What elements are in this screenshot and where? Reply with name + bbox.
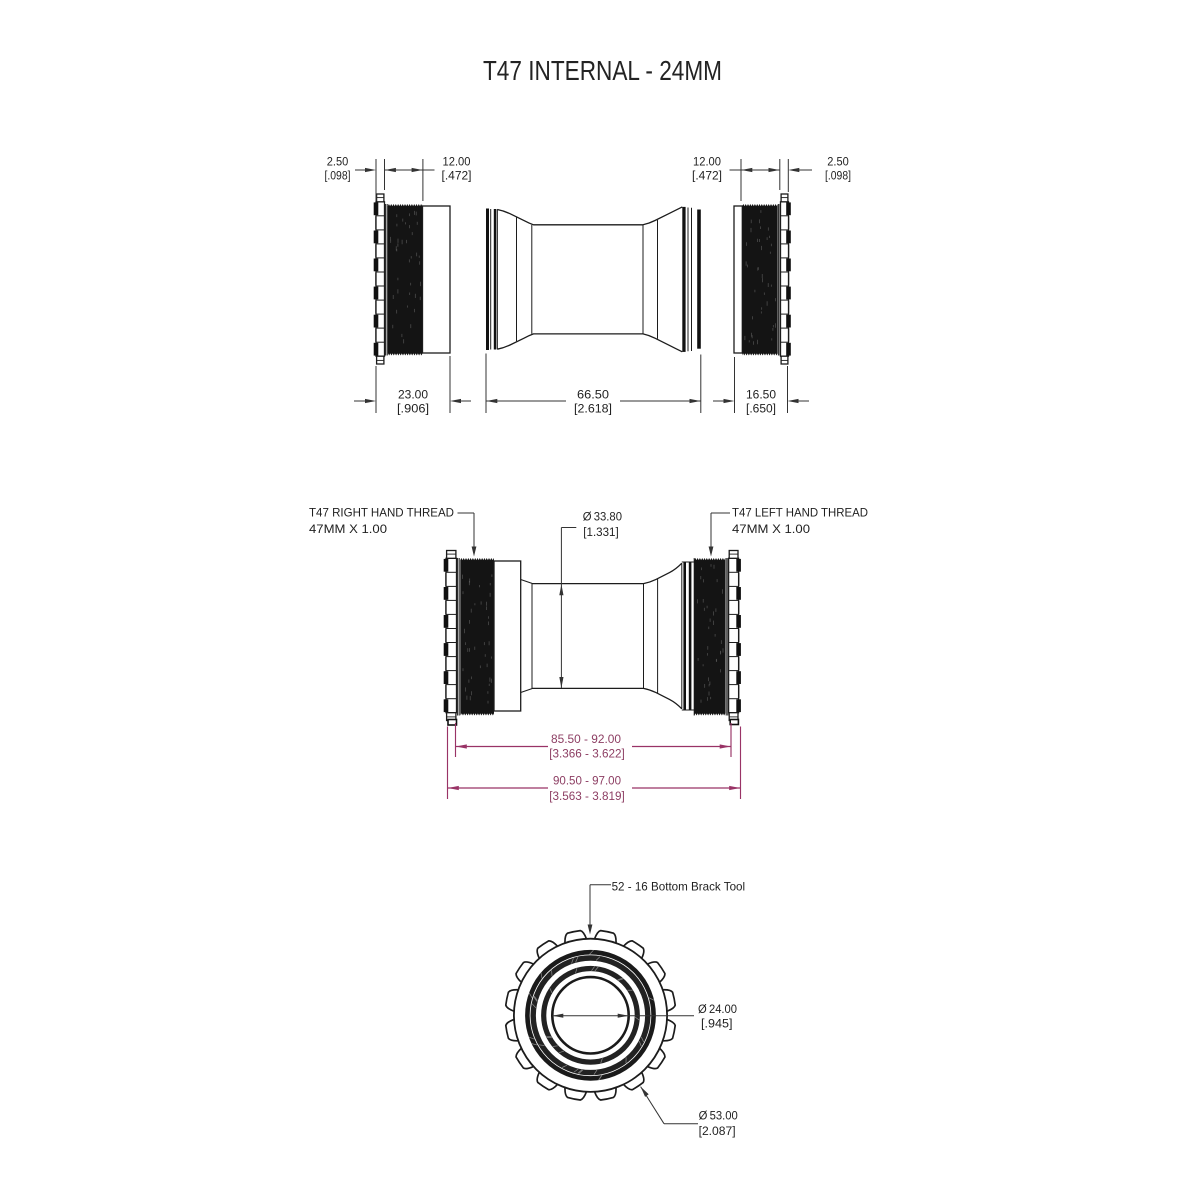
- svg-text:[.472]: [.472]: [442, 171, 472, 183]
- svg-text:Ø 53.00: Ø 53.00: [699, 1111, 738, 1123]
- svg-text:[3.563 - 3.819]: [3.563 - 3.819]: [549, 791, 625, 803]
- svg-text:16.50: 16.50: [746, 390, 776, 402]
- svg-text:T47 INTERNAL - 24MM: T47 INTERNAL - 24MM: [483, 55, 722, 86]
- svg-text:[1.331]: [1.331]: [583, 527, 618, 539]
- svg-text:[.650]: [.650]: [746, 404, 776, 416]
- svg-text:[3.366 - 3.622]: [3.366 - 3.622]: [549, 749, 625, 761]
- svg-text:66.50: 66.50: [577, 390, 609, 402]
- svg-text:85.50 - 92.00: 85.50 - 92.00: [551, 734, 621, 746]
- svg-text:Ø 33.80: Ø 33.80: [583, 512, 622, 524]
- svg-text:12.00: 12.00: [693, 157, 721, 169]
- svg-text:[.472]: [.472]: [692, 171, 722, 183]
- svg-text:[.098]: [.098]: [825, 171, 851, 183]
- svg-text:[2.618]: [2.618]: [574, 404, 612, 416]
- svg-text:2.50: 2.50: [827, 157, 849, 169]
- svg-text:[.906]: [.906]: [397, 404, 429, 416]
- svg-text:T47 RIGHT HAND THREAD: T47 RIGHT HAND THREAD: [309, 506, 454, 520]
- svg-text:[.098]: [.098]: [325, 171, 351, 183]
- svg-text:52 - 16 Bottom Brack Tool: 52 - 16 Bottom Brack Tool: [612, 880, 746, 894]
- svg-text:T47 LEFT HAND THREAD: T47 LEFT HAND THREAD: [732, 506, 868, 520]
- svg-text:2.50: 2.50: [327, 157, 349, 169]
- svg-text:[.945]: [.945]: [701, 1018, 733, 1030]
- svg-text:12.00: 12.00: [443, 157, 471, 169]
- svg-text:[2.087]: [2.087]: [699, 1126, 736, 1138]
- svg-text:47MM X 1.00: 47MM X 1.00: [732, 522, 810, 536]
- svg-text:Ø 24.00: Ø 24.00: [698, 1004, 737, 1016]
- svg-text:90.50 - 97.00: 90.50 - 97.00: [553, 776, 621, 788]
- svg-text:23.00: 23.00: [398, 390, 428, 402]
- svg-text:47MM X 1.00: 47MM X 1.00: [309, 522, 387, 536]
